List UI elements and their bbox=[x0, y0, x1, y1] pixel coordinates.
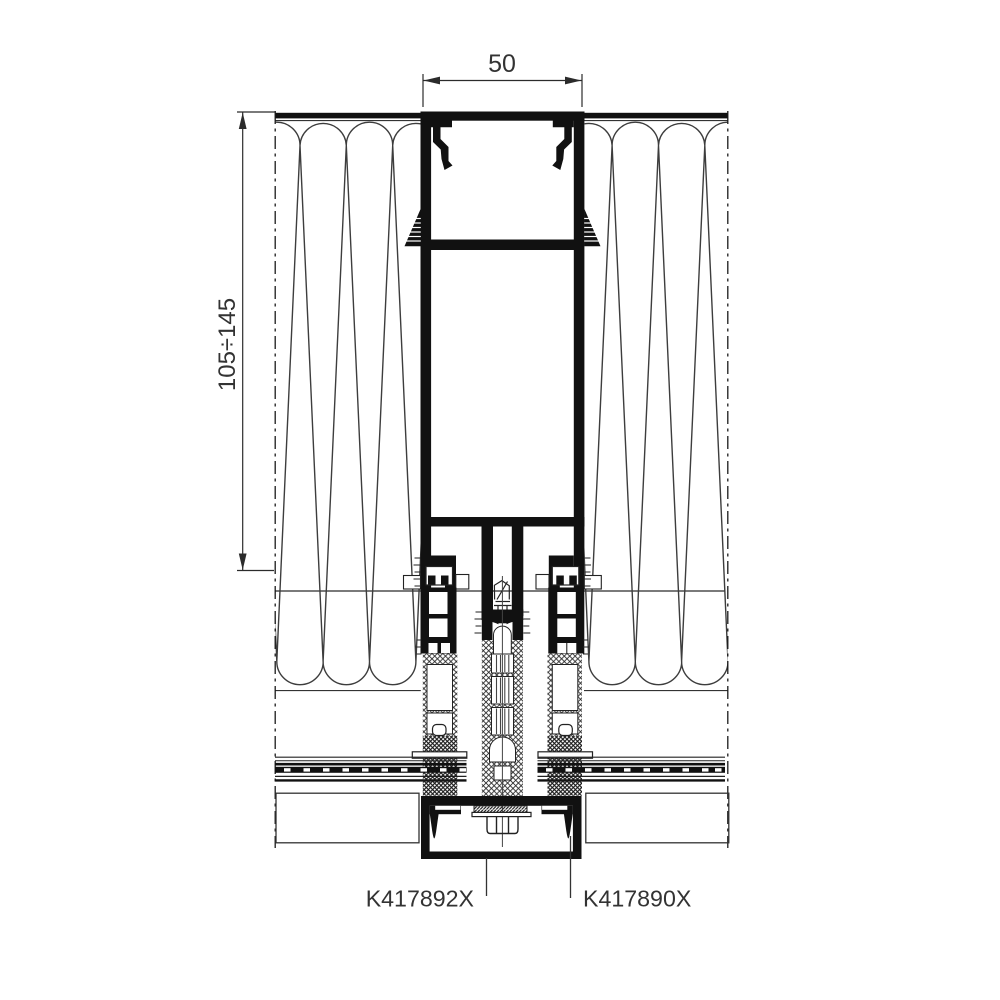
svg-text:50: 50 bbox=[488, 50, 516, 78]
svg-text:K417890X: K417890X bbox=[583, 886, 691, 912]
svg-text:105÷145: 105÷145 bbox=[214, 298, 241, 391]
svg-text:K417892X: K417892X bbox=[366, 886, 474, 912]
